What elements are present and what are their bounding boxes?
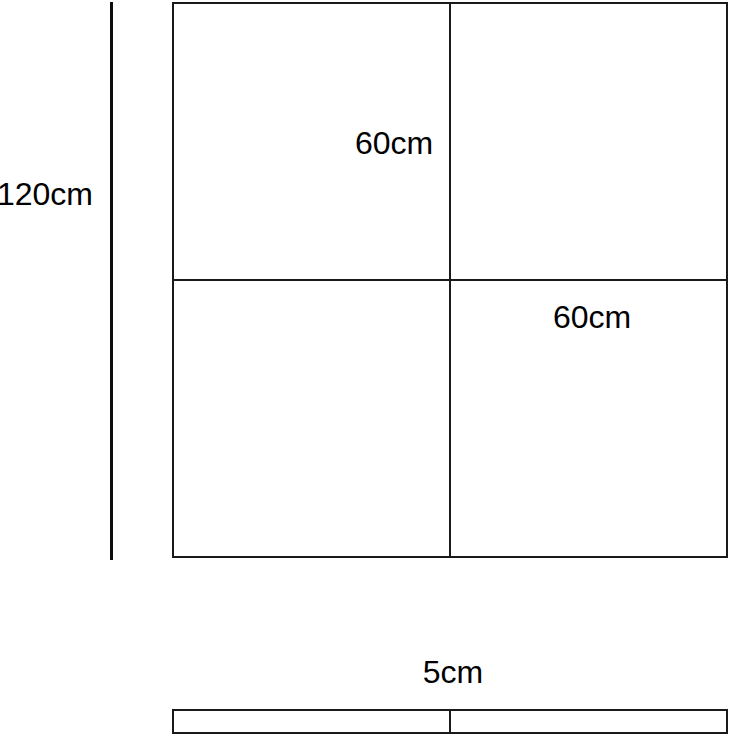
quadrant-width-label-top: 60cm [355,127,433,159]
side-profile-divider [449,711,451,732]
grid-horizontal-divider [174,279,726,281]
quadrant-width-label-right: 60cm [553,301,631,333]
tile-grid-outline [172,2,728,558]
height-dimension-label: 120cm [0,178,93,210]
thickness-label: 5cm [423,656,483,688]
diagram-canvas: 120cm 60cm 60cm 5cm [0,0,731,737]
tile-side-profile [172,709,728,734]
height-dimension-line [110,2,113,560]
